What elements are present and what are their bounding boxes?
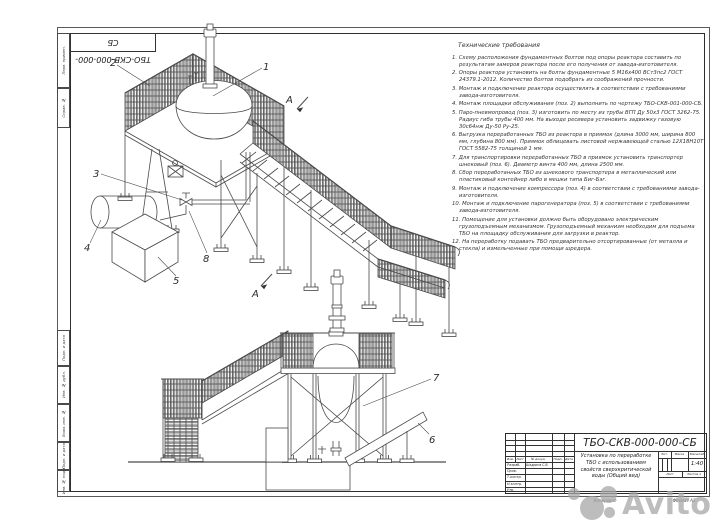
col-list: Лист <box>515 456 525 462</box>
technical-requirement-item: 1. Схему расположения фундаментных болто… <box>452 55 706 69</box>
technical-requirement-item: 4. Монтаж площадки обслуживания (поз. 2)… <box>452 101 706 108</box>
scanned-drawing-page: { "frame": { "designation_flipped": "ТБО… <box>0 0 720 527</box>
general-view-isometric: А А 1 2 3 4 5 8 <box>84 24 459 337</box>
technical-requirements-list: 1. Схему расположения фундаментных болто… <box>452 55 706 253</box>
technical-requirement-item: 12. На переработку подавать ТБО предвари… <box>452 239 706 253</box>
avito-logo-circle <box>568 488 580 500</box>
technical-requirement-item: 3. Монтаж и подключение реактора осущест… <box>452 86 706 100</box>
reactor-stack <box>206 36 214 86</box>
section-mark-a-top: А <box>285 95 308 112</box>
technical-requirements: Технические требования 1. Схему располож… <box>452 42 706 255</box>
technical-requirement-item: 10. Монтаж и подключение парогенератора … <box>452 201 706 215</box>
sheet-label: Лист <box>658 471 682 478</box>
callout-8: 8 <box>203 254 209 265</box>
mass-header: Масса <box>671 451 688 458</box>
side-elevation-view: 6 7 <box>128 270 446 490</box>
callout-6: 6 <box>429 435 435 446</box>
lit-header: Лит. <box>658 451 671 458</box>
avito-watermark: Avito <box>562 486 720 527</box>
avito-watermark-text: Avito <box>622 487 711 522</box>
callout-leaders-bottom <box>363 379 431 434</box>
pit <box>266 462 350 490</box>
elevation-reactor-bottom <box>266 376 354 462</box>
callout-1: 1 <box>263 62 269 73</box>
col-data: Дата <box>564 456 574 462</box>
col-dokum: № докум. <box>525 456 552 462</box>
avito-logo-circle <box>600 486 617 503</box>
sheets-cell: Листов 1 <box>682 471 706 478</box>
sheets-value: 1 <box>699 472 701 476</box>
staircase <box>240 121 391 267</box>
row-utv: Утв. <box>507 488 525 493</box>
section-mark-a-bottom: А <box>251 274 272 300</box>
col-podp: Подп. <box>552 456 564 462</box>
callout-3: 3 <box>93 169 99 180</box>
technical-requirement-item: 9. Монтаж и подключение компрессора (поз… <box>452 186 706 200</box>
callout-4: 4 <box>84 243 90 254</box>
technical-requirement-item: 11. Помещение для установки должно быть … <box>452 217 706 238</box>
section-letter: А <box>285 95 293 106</box>
container-box <box>112 214 178 282</box>
avito-logo-circle <box>604 507 615 518</box>
col-izm: Изм. <box>506 456 515 462</box>
title-block: ТБО-СКВ-000-000-СБ Установка по перерабо… <box>505 433 707 494</box>
callout-5: 5 <box>173 276 179 287</box>
razrab-name: Шадрина С.В. <box>526 463 552 469</box>
equipment-cabinet <box>266 428 288 462</box>
technical-requirement-item: 7. Для транспортировки переработанных ТБ… <box>452 155 706 169</box>
technical-requirement-item: 2. Опоры реактора установить на болты фу… <box>452 70 706 84</box>
elevation-reactor-top <box>313 270 359 368</box>
scale-value: 1:40 <box>688 458 706 471</box>
callout-2: 2 <box>110 58 116 69</box>
avito-logo-circle <box>580 496 604 520</box>
callout-7: 7 <box>433 373 440 384</box>
drawing-designation: ТБО-СКВ-000-000-СБ <box>574 434 706 451</box>
technical-requirement-item: 5. Паро-пневмопровод (поз. 3) изготовить… <box>452 110 706 131</box>
technical-requirement-item: 8. Сбор переработанных ТБО из шнекового … <box>452 170 706 184</box>
technical-requirement-item: 6. Выгрузка переработанных ТБО из реакто… <box>452 132 706 153</box>
section-letter: А <box>251 289 259 300</box>
sheets-label: Листов <box>687 472 698 476</box>
technical-requirements-title: Технические требования <box>458 42 706 49</box>
